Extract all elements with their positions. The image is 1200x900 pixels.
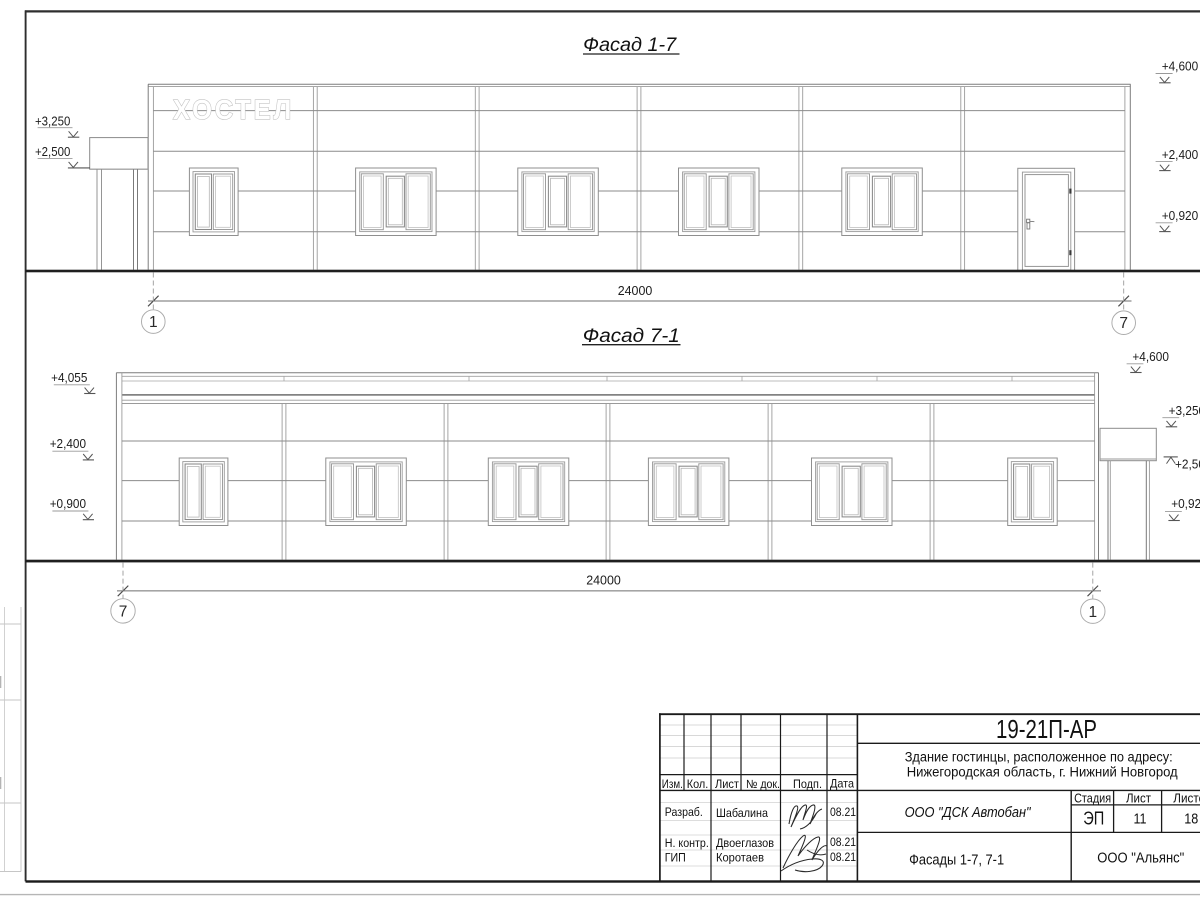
svg-text:Лист: Лист [1126, 792, 1151, 806]
svg-text:Подп.: Подп. [793, 777, 822, 791]
svg-text:24000: 24000 [586, 573, 621, 588]
svg-text:№ док.: № док. [746, 777, 780, 791]
svg-text:Стадия: Стадия [1074, 792, 1111, 806]
svg-text:ХОСТЕЛ: ХОСТЕЛ [173, 94, 294, 125]
svg-text:Здание гостинцы, расположенное: Здание гостинцы, расположенное по адресу… [905, 749, 1173, 765]
svg-text:Нижегородская область, г. Нижн: Нижегородская область, г. Нижний Новгоро… [907, 765, 1179, 781]
svg-text:Н. контр.: Н. контр. [665, 836, 709, 850]
svg-text:+0,920: +0,920 [1171, 496, 1200, 511]
svg-text:Изм.: Изм. [662, 777, 683, 791]
svg-text:Кол.: Кол. [687, 777, 709, 791]
svg-text:08.21: 08.21 [830, 835, 856, 849]
svg-text:Фасад 1-7: Фасад 1-7 [583, 34, 677, 56]
svg-text:+2,400: +2,400 [50, 436, 86, 451]
svg-text:+4,600: +4,600 [1162, 58, 1199, 73]
svg-text:Лист: Лист [715, 777, 740, 791]
svg-text:+2,500: +2,500 [1175, 456, 1200, 471]
svg-text:+3,250: +3,250 [1169, 403, 1200, 418]
svg-text:08.21: 08.21 [830, 805, 856, 819]
svg-text:7: 7 [119, 604, 128, 621]
svg-text:Шабалина: Шабалина [716, 806, 768, 820]
svg-text:ООО "ДСК Автобан": ООО "ДСК Автобан" [905, 805, 1032, 821]
svg-text:11: 11 [1134, 811, 1147, 827]
svg-text:+2,400: +2,400 [1162, 147, 1199, 162]
svg-text:+3,250: +3,250 [35, 113, 70, 128]
svg-text:+4,600: +4,600 [1132, 349, 1169, 364]
svg-text:1: 1 [149, 314, 158, 331]
svg-text:+0,900: +0,900 [50, 496, 86, 511]
svg-text:+4,055: +4,055 [51, 370, 87, 385]
svg-text:Фасад 7-1: Фасад 7-1 [583, 325, 680, 347]
svg-text:08.21: 08.21 [830, 850, 856, 864]
svg-text:ООО "Альянс": ООО "Альянс" [1097, 850, 1184, 866]
svg-text:Коротаев: Коротаев [716, 851, 764, 865]
svg-text:18: 18 [1184, 811, 1198, 827]
svg-text:Двоеглазов: Двоеглазов [716, 836, 774, 850]
svg-text:+2,500: +2,500 [35, 144, 70, 159]
svg-text:24000: 24000 [618, 283, 653, 298]
svg-text:ГИП: ГИП [665, 851, 686, 865]
svg-text:Фасады 1-7, 7-1: Фасады 1-7, 7-1 [909, 853, 1004, 869]
svg-text:7: 7 [1119, 315, 1128, 332]
svg-text:1: 1 [1088, 604, 1097, 621]
svg-text:Листов: Листов [1173, 792, 1200, 806]
svg-text:ЭП: ЭП [1083, 808, 1104, 828]
svg-text:Разраб.: Разраб. [665, 805, 703, 819]
svg-text:+0,920: +0,920 [1162, 208, 1199, 223]
svg-text:19-21П-АР: 19-21П-АР [996, 714, 1097, 744]
svg-text:Дата: Дата [830, 776, 854, 790]
